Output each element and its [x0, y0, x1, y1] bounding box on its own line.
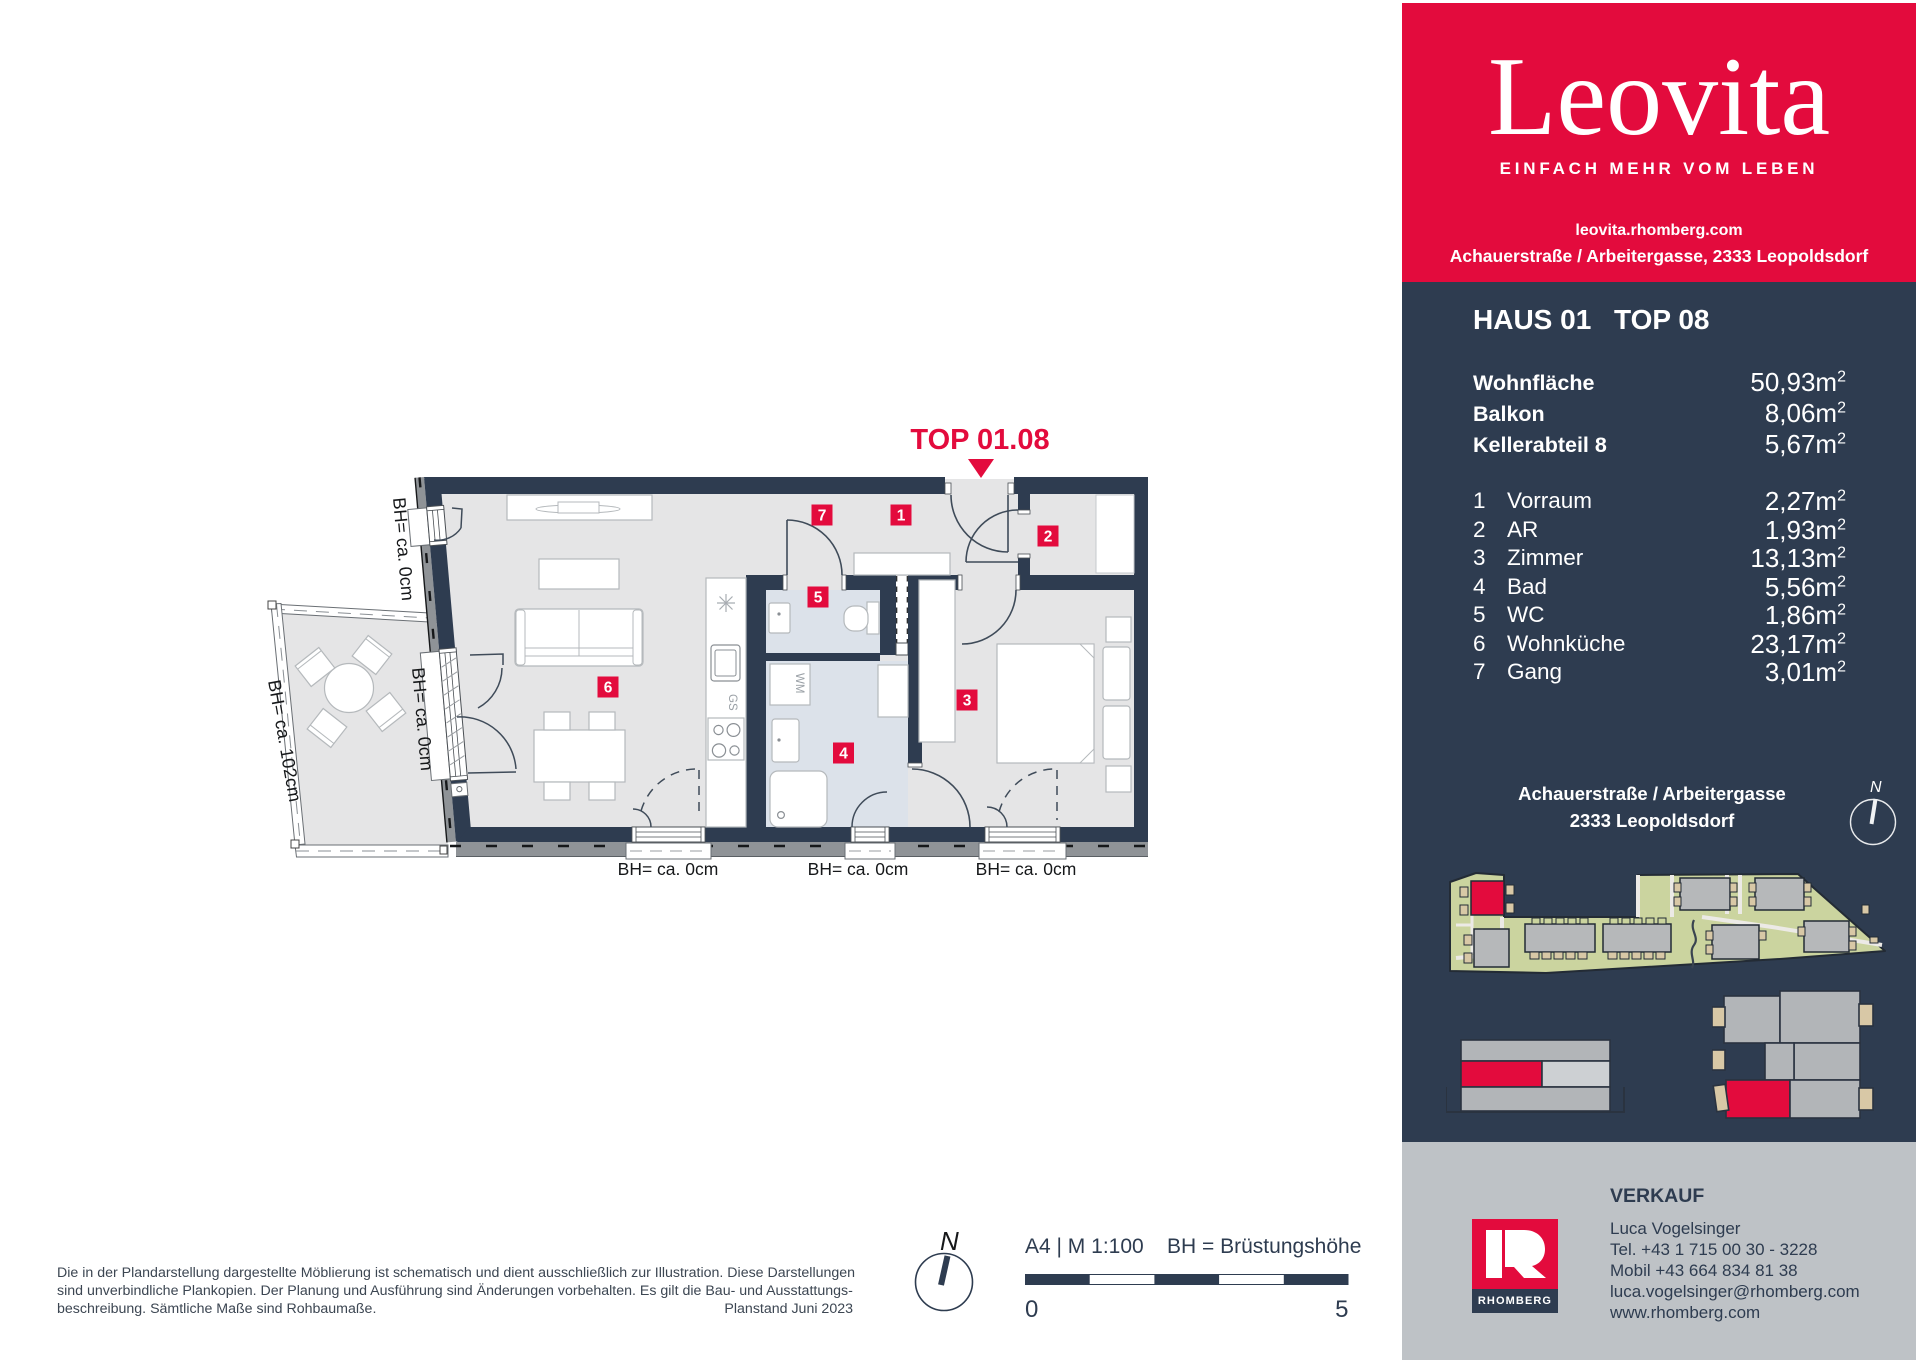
svg-text:2: 2 [1044, 529, 1053, 546]
svg-text:Planstand Juni 2023: Planstand Juni 2023 [724, 1301, 853, 1317]
svg-text:Die in der Plandarstellung dar: Die in der Plandarstellung dargestellte … [57, 1265, 855, 1281]
svg-text:1: 1 [897, 508, 906, 525]
svg-text:6: 6 [604, 680, 613, 697]
svg-text:BH= ca. 0cm: BH= ca. 0cm [808, 859, 909, 879]
svg-text:N: N [940, 1226, 959, 1256]
svg-text:5: 5 [814, 590, 823, 607]
svg-text:BH= ca. 0cm: BH= ca. 0cm [976, 859, 1077, 879]
svg-text:0: 0 [1025, 1296, 1038, 1323]
svg-text:beschreibung. Sämtliche Maße s: beschreibung. Sämtliche Maße sind Rohbau… [57, 1301, 376, 1317]
svg-text:WM: WM [793, 673, 805, 693]
svg-text:4: 4 [839, 746, 848, 763]
svg-text:5: 5 [1335, 1296, 1348, 1323]
svg-text:TOP 01.08: TOP 01.08 [910, 424, 1049, 456]
svg-text:A4 | M 1:100 BH = Brüstungs: A4 | M 1:100 BH = Brüstungshöhe [1025, 1235, 1361, 1258]
svg-text:N: N [1870, 779, 1882, 796]
svg-text:GS: GS [726, 694, 738, 711]
svg-text:sind unverbindliche Plankopien: sind unverbindliche Plankopien. Der Plan… [57, 1282, 853, 1299]
svg-text:3: 3 [963, 693, 972, 710]
svg-text:7: 7 [818, 508, 827, 525]
svg-text:BH= ca. 0cm: BH= ca. 0cm [618, 859, 719, 879]
